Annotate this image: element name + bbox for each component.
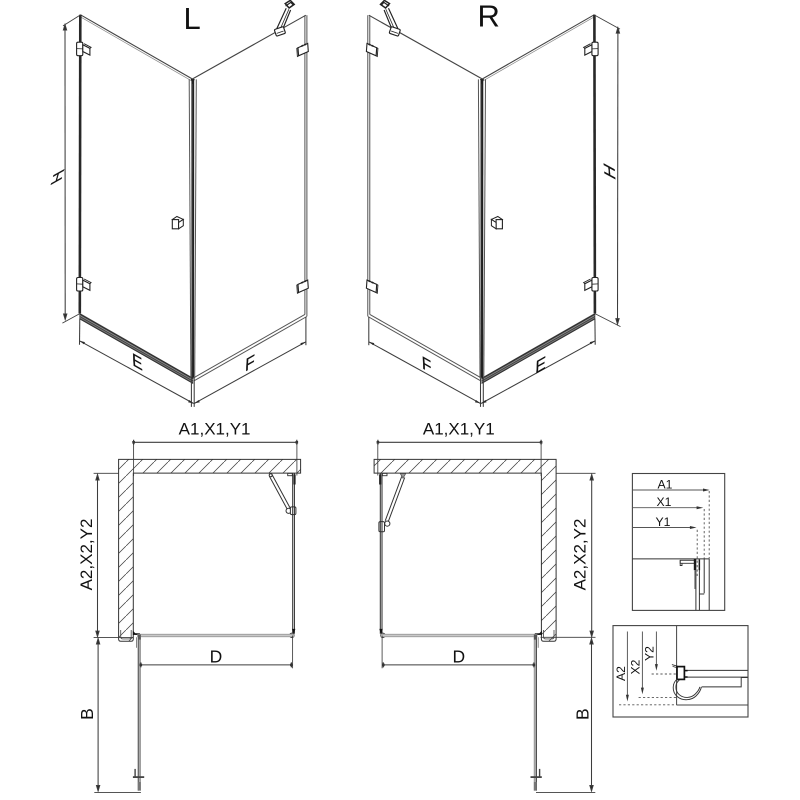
svg-text:L: L	[184, 1, 201, 36]
svg-text:X1: X1	[657, 495, 672, 509]
svg-text:R: R	[478, 0, 500, 34]
svg-text:D: D	[452, 647, 465, 667]
svg-text:Y1: Y1	[656, 515, 671, 529]
svg-text:A2,X2,Y2: A2,X2,Y2	[77, 519, 96, 591]
svg-text:A2: A2	[614, 666, 628, 681]
svg-text:X2: X2	[629, 659, 643, 674]
svg-text:B: B	[572, 708, 592, 720]
svg-text:A2,X2,Y2: A2,X2,Y2	[571, 519, 590, 591]
svg-text:B: B	[77, 708, 97, 720]
svg-text:A1,X1,Y1: A1,X1,Y1	[423, 420, 495, 439]
svg-text:A1: A1	[658, 478, 673, 492]
svg-text:Y2: Y2	[642, 646, 656, 661]
svg-text:A1,X1,Y1: A1,X1,Y1	[179, 420, 251, 439]
svg-text:D: D	[210, 647, 223, 667]
